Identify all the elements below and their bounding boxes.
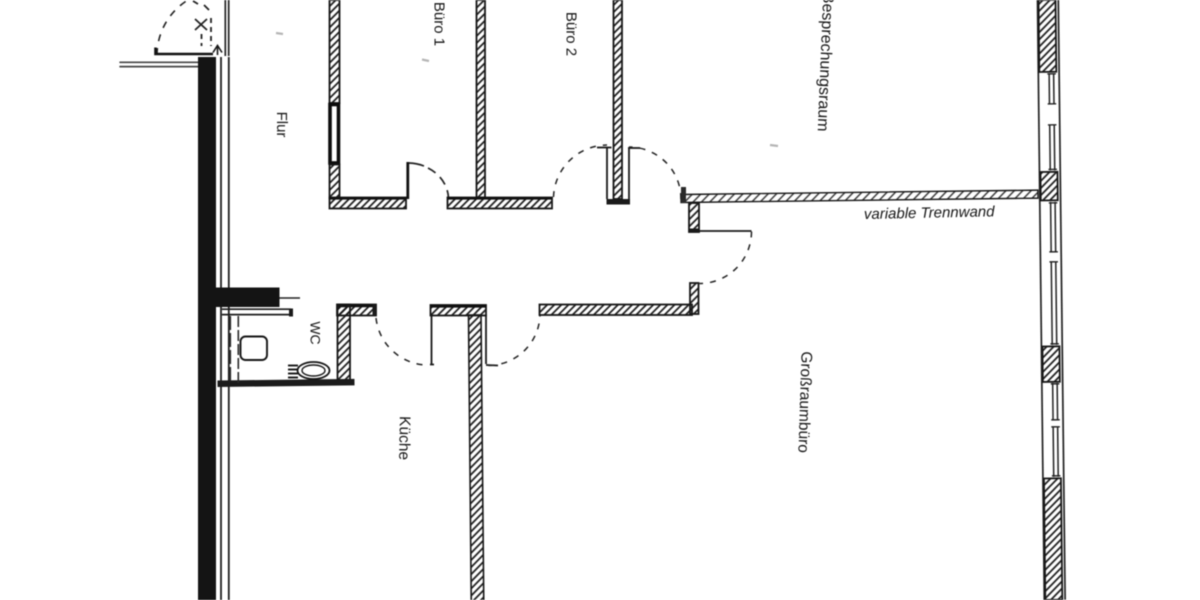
svg-text:Küche: Küche [395,416,413,460]
svg-text:Großraumbüro: Großraumbüro [794,351,814,453]
svg-text:Büro 2: Büro 2 [563,12,580,56]
svg-text:Flur: Flur [273,112,290,138]
svg-text:Büro 1: Büro 1 [431,2,448,46]
svg-text:WC: WC [308,321,324,344]
svg-text:variable Trennwand: variable Trennwand [864,203,996,223]
